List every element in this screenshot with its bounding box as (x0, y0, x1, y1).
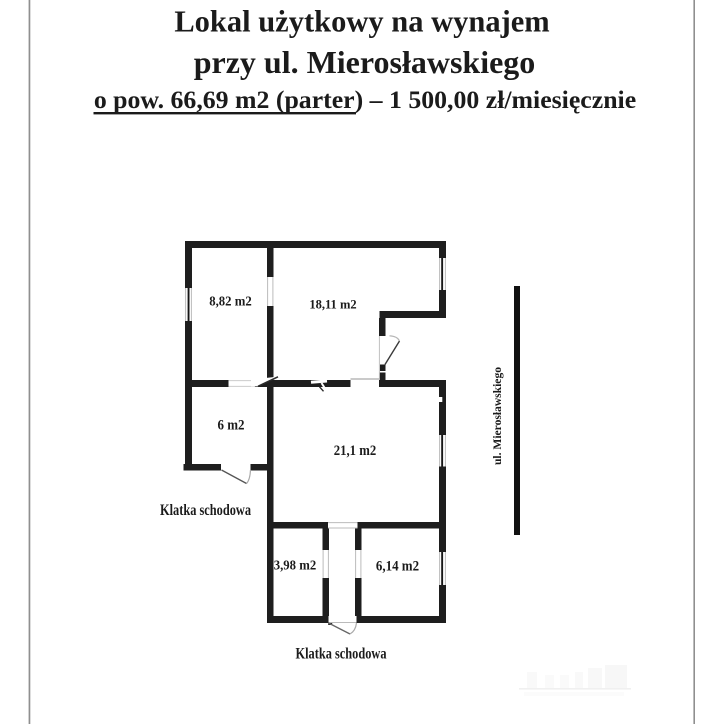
svg-text:Klatka schodowa: Klatka schodowa (296, 646, 387, 663)
svg-text:8,82 m2: 8,82 m2 (209, 295, 252, 310)
svg-text:3,98 m2: 3,98 m2 (274, 559, 317, 574)
svg-text:Lokal użytkowy na wynajem: Lokal użytkowy na wynajem (174, 5, 549, 39)
svg-text:Klatka schodowa: Klatka schodowa (160, 502, 251, 519)
svg-text:o pow. 66,69 m2 (parter) – 1 5: o pow. 66,69 m2 (parter) – 1 500,00 zł/m… (94, 85, 636, 114)
svg-text:18,11 m2: 18,11 m2 (309, 297, 356, 312)
svg-text:6,14 m2: 6,14 m2 (376, 559, 419, 575)
svg-text:6 m2: 6 m2 (218, 418, 245, 434)
svg-text:przy ul. Mierosławskiego: przy ul. Mierosławskiego (194, 44, 536, 80)
svg-text:21,1 m2: 21,1 m2 (334, 443, 377, 459)
svg-text:ul. Mierosławskiego: ul. Mierosławskiego (490, 367, 504, 465)
